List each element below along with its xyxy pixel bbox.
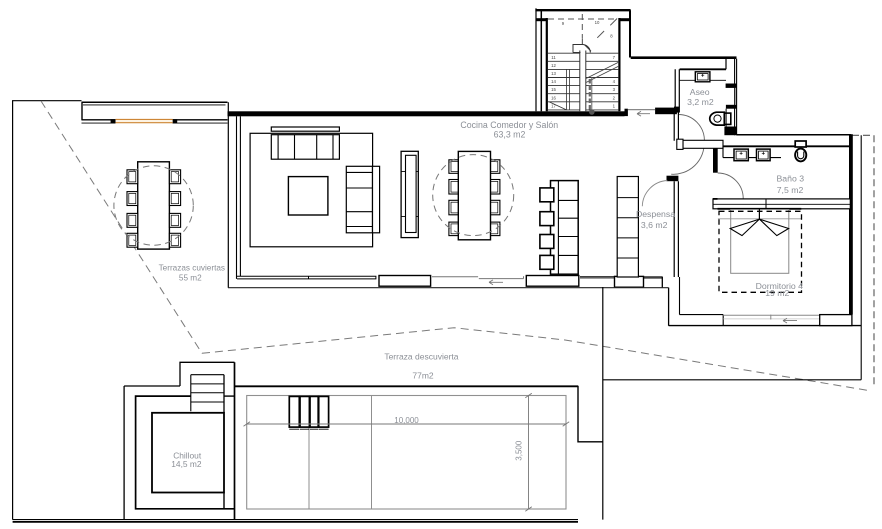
svg-text:3,500: 3,500 bbox=[515, 440, 524, 461]
svg-text:55 m2: 55 m2 bbox=[179, 274, 202, 283]
svg-text:Aseo: Aseo bbox=[690, 87, 710, 97]
svg-text:Cocina Comedor y Salón: Cocina Comedor y Salón bbox=[460, 120, 558, 130]
svg-text:14: 14 bbox=[551, 79, 556, 84]
svg-text:3,6 m2: 3,6 m2 bbox=[641, 220, 668, 230]
svg-text:3,2 m2: 3,2 m2 bbox=[687, 97, 714, 107]
svg-text:12: 12 bbox=[551, 63, 556, 68]
svg-text:7,5 m2: 7,5 m2 bbox=[777, 185, 804, 195]
svg-text:10,000: 10,000 bbox=[394, 416, 419, 425]
svg-text:Baño 3: Baño 3 bbox=[777, 173, 805, 183]
svg-text:Terraza descuvierta: Terraza descuvierta bbox=[384, 352, 458, 362]
svg-text:15: 15 bbox=[551, 87, 556, 92]
svg-text:19 m2: 19 m2 bbox=[765, 288, 789, 298]
svg-text:Terrazas cuviertas: Terrazas cuviertas bbox=[159, 264, 225, 273]
svg-text:Despensa: Despensa bbox=[636, 209, 675, 219]
svg-text:77m2: 77m2 bbox=[412, 371, 434, 381]
svg-text:16: 16 bbox=[551, 95, 556, 100]
svg-text:10: 10 bbox=[595, 20, 600, 25]
svg-text:11: 11 bbox=[551, 55, 556, 60]
svg-text:63,3 m2: 63,3 m2 bbox=[494, 129, 526, 139]
svg-text:17: 17 bbox=[551, 103, 556, 108]
svg-text:14,5 m2: 14,5 m2 bbox=[171, 459, 202, 469]
svg-text:13: 13 bbox=[551, 71, 556, 76]
